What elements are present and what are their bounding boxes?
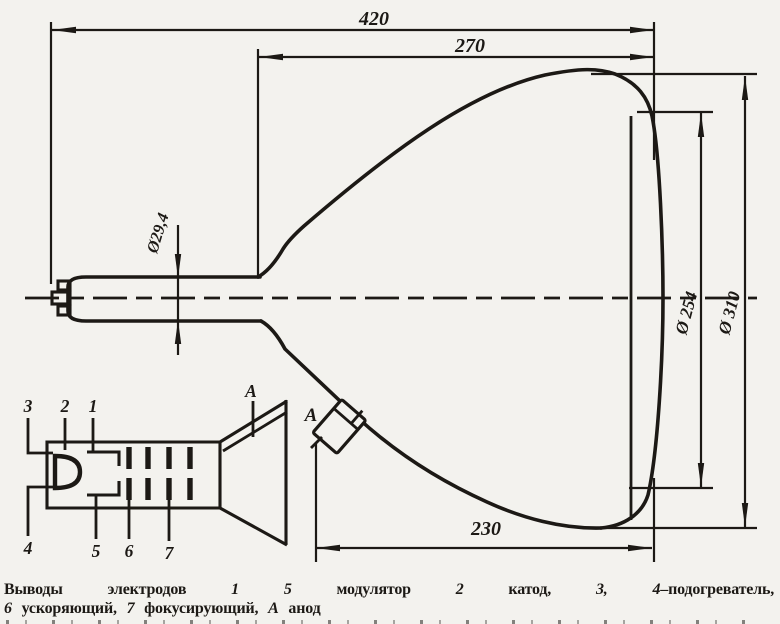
dim-420-arrow-right (630, 27, 654, 33)
pin-label-4: 4 (23, 538, 33, 558)
dim-254-arrow-top (698, 113, 704, 137)
electrode-gun-inset: 3 2 1 A 4 5 6 7 (23, 381, 287, 563)
dim-230-arrow-left (316, 545, 340, 551)
dim-max-diameter: Ø 310 (591, 74, 757, 528)
funnel-inner-line (223, 412, 287, 451)
dim-254-arrow-bottom (698, 463, 704, 487)
pin-label-6: 6 (125, 541, 134, 561)
figure-caption: Выводы электродов 1 5 модулятор 2 катод,… (4, 581, 774, 618)
caption-line-2: 6 ускоряющий, 7 фокусирующий, А анод (4, 600, 774, 619)
modulator-bottom (87, 481, 119, 495)
dim-420: 420 (51, 8, 654, 284)
caption-line-1: Выводы электродов 1 5 модулятор 2 катод,… (4, 581, 774, 600)
caption-segment: фокусирующий, (134, 600, 268, 617)
dim-neck-arrow-bottom (175, 320, 181, 344)
inset-anode-label: A (244, 381, 257, 401)
funnel-bottom-edge (220, 508, 287, 545)
anode-label: A (304, 405, 318, 426)
dim-neck-arrow-top (175, 254, 181, 278)
dim-310-label: Ø 310 (714, 289, 745, 337)
pin-label-2: 2 (60, 396, 70, 416)
dim-420-label: 420 (358, 8, 389, 30)
caption-segment: 6 (4, 600, 12, 617)
dim-230-label: 230 (470, 518, 501, 540)
caption-segment: ускоряющий, (12, 600, 127, 617)
dim-270-label: 270 (454, 35, 485, 57)
anode-cap (313, 396, 369, 454)
cropped-next-line-remnant (6, 620, 758, 624)
caption-segment: модулятор (292, 581, 456, 598)
caption-segment: Выводы электродов (4, 581, 231, 598)
dim-neck-diameter: Ø29,4 (142, 211, 181, 355)
dim-310-arrow-bottom (742, 503, 748, 527)
dim-310-arrow-top (742, 76, 748, 100)
pin-label-7: 7 (165, 543, 175, 563)
dim-254-label: Ø 254 (671, 289, 702, 337)
caption-segment: А (268, 600, 278, 617)
modulator-top (87, 452, 119, 466)
dim-270-arrow-left (259, 54, 283, 60)
dim-230-arrow-right (628, 545, 652, 551)
caption-segment: 1 5 (231, 581, 292, 598)
dim-420-arrow-left (52, 27, 76, 33)
crt-technical-drawing-page: A 420 270 230 Ø29,4 (0, 0, 780, 624)
dim-screen-diameter: Ø 254 (629, 112, 713, 488)
dim-neck-label: Ø29,4 (142, 211, 172, 257)
cathode-heater (55, 456, 80, 488)
lead-3 (28, 418, 53, 453)
pin-label-5: 5 (92, 541, 101, 561)
caption-segment: –подогреватель, (660, 581, 774, 598)
crt-outline-drawing: A 420 270 230 Ø29,4 (0, 0, 780, 580)
caption-segment: 2 (456, 581, 464, 598)
lead-4 (28, 487, 53, 536)
caption-segment: 3, 4 (596, 581, 660, 598)
dim-270-arrow-right (630, 54, 654, 60)
anode-cap-body (313, 399, 366, 453)
pin-label-3: 3 (23, 396, 33, 416)
gun-envelope (47, 442, 220, 508)
pin-label-1: 1 (89, 396, 98, 416)
caption-segment: анод (279, 600, 321, 617)
caption-segment: катод, (464, 581, 596, 598)
